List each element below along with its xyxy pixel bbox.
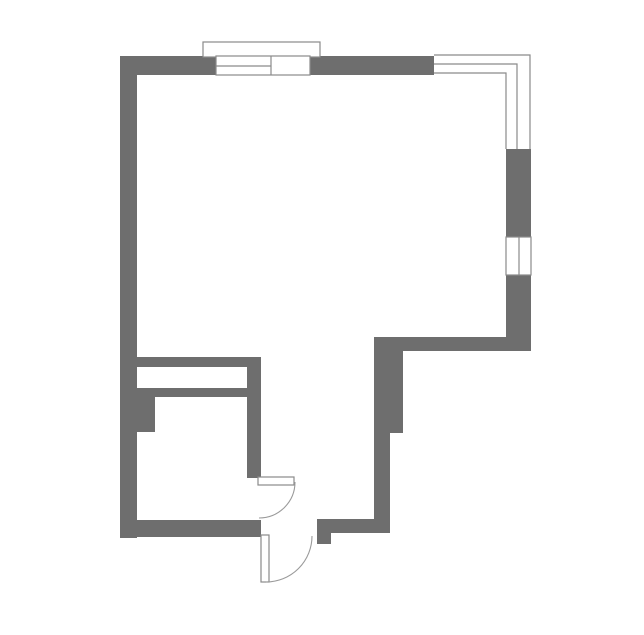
wall-bottom-right: [317, 519, 390, 533]
shaft-bottom-band: [137, 388, 247, 397]
floorplan-svg: [0, 0, 644, 635]
floorplan-page: [0, 0, 644, 635]
wall-right-upper: [506, 149, 531, 237]
wall-step-vertical-upper: [374, 337, 403, 433]
wall-pier: [137, 397, 155, 432]
window-top-sill: [203, 42, 320, 57]
shaft-top-band: [137, 357, 258, 367]
door-interior-leaf: [258, 477, 294, 485]
wall-left: [120, 56, 137, 538]
shaft-right-wall: [247, 357, 261, 478]
door-stop-tab: [317, 533, 331, 544]
door-exterior-leaf: [261, 535, 269, 582]
wall-step-vertical-lower: [374, 433, 390, 530]
wall-bottom-left: [120, 520, 261, 537]
